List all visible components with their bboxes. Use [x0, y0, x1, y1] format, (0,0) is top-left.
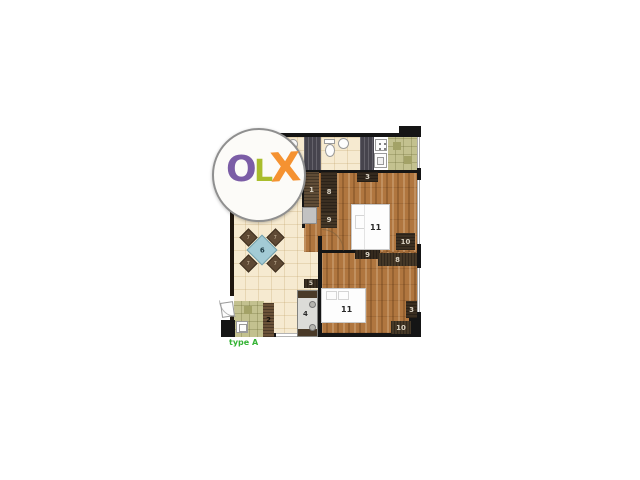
- pillow: [326, 291, 337, 300]
- closet-label: 10: [396, 324, 406, 332]
- kitchen-unit-label: 2: [266, 316, 271, 324]
- type-caption: type A: [229, 338, 258, 347]
- chair-label: 7: [247, 261, 250, 267]
- top-right-wall-block: [399, 126, 421, 134]
- right-window-line: [417, 137, 420, 333]
- closet-label: 3: [409, 306, 414, 314]
- closet-label: 3: [365, 173, 370, 181]
- bedroom1-closet-top: 3: [357, 172, 378, 182]
- hall-closet-8: 8: [321, 172, 337, 212]
- olx-letter-x: X: [269, 147, 302, 189]
- sofa-label: 4: [303, 310, 308, 318]
- chair-label: 7: [247, 235, 250, 241]
- hall-closet-9: 9: [321, 212, 337, 228]
- bed-label: 11: [370, 223, 381, 232]
- bed-label: 11: [341, 305, 352, 314]
- divider-closet-right: 8: [378, 253, 417, 266]
- washbasin: [338, 138, 349, 149]
- pillow: [338, 291, 349, 300]
- bottom-left-wall-block: [221, 320, 235, 337]
- closet-label: 9: [365, 251, 370, 259]
- sofa-armrest: [298, 291, 317, 298]
- sofa-button: [309, 324, 316, 331]
- floorplan-image: 1 8 9 3 11 10 9 8 11 3 10 7 7: [0, 0, 640, 480]
- olx-watermark: O L X: [212, 128, 306, 222]
- closet-label: 1: [309, 186, 314, 194]
- closet-label: 8: [327, 188, 332, 196]
- hall-closet-1: 1: [304, 172, 319, 207]
- stove: [375, 139, 387, 151]
- closet-label: 8: [395, 256, 400, 264]
- bedroom2-closet-bottom: 10: [391, 321, 411, 334]
- hall-appliance-box: [302, 207, 317, 224]
- top-wall: [267, 133, 421, 137]
- shaft-wall-2: [360, 137, 374, 170]
- kitchen-tile-dark: [244, 306, 252, 314]
- divider-closet-left: 9: [355, 250, 380, 259]
- tv-unit-label: 5: [309, 280, 313, 287]
- bed1: 11: [351, 204, 390, 250]
- bottom-window-gap: [276, 333, 298, 337]
- sofa-button: [309, 301, 316, 308]
- table-label: 6: [260, 246, 265, 254]
- kitchen-tile-dark: [404, 156, 412, 164]
- kitchen-tile-dark: [393, 142, 401, 150]
- kitchen-sink2: [236, 321, 248, 333]
- toilet-bowl: [325, 144, 335, 157]
- closet-label: 10: [401, 238, 411, 246]
- sofa: 4: [297, 290, 318, 337]
- kitchen-unit-2: 2: [263, 303, 274, 337]
- olx-letter-o: O: [226, 152, 257, 188]
- right-wall-segment: [417, 244, 421, 268]
- chair-label: 7: [274, 235, 277, 241]
- closet-label: 9: [327, 216, 332, 224]
- bedroom2-closet-right: 3: [406, 301, 417, 318]
- sink-basin: [239, 324, 247, 332]
- kitchen-sink-basin: [377, 157, 384, 165]
- shaft-wall-1: [304, 137, 321, 170]
- bed-fold-line: [364, 205, 365, 249]
- chair-label: 7: [274, 261, 277, 267]
- bedroom1-closet-right: 10: [396, 233, 415, 250]
- bed2: 11: [321, 288, 366, 323]
- tv-unit: 5: [304, 279, 318, 288]
